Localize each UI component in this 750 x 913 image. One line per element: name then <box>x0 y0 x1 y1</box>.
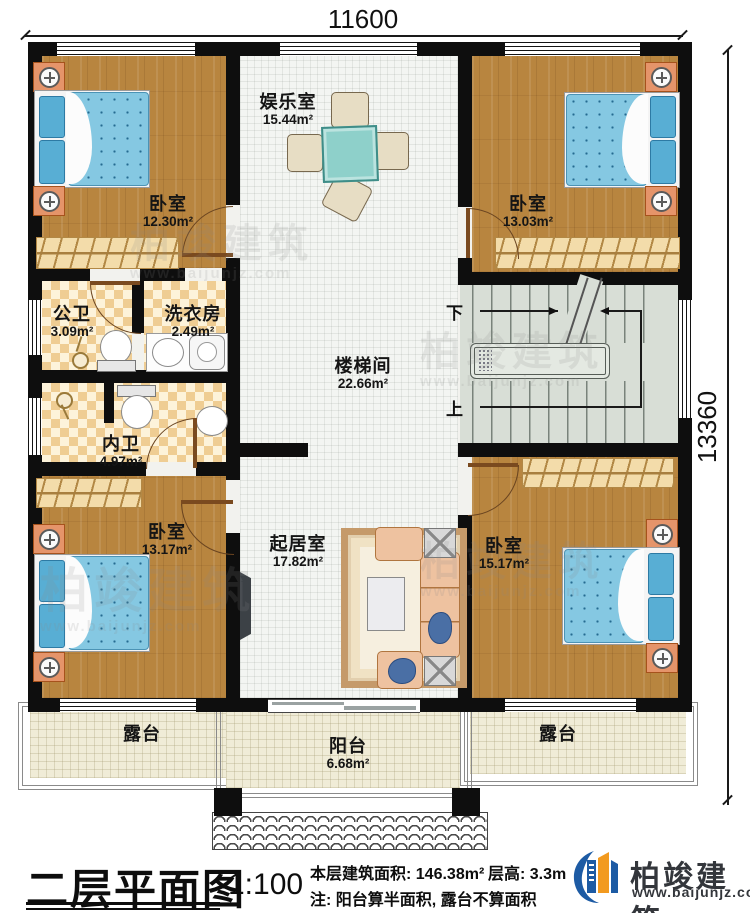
wall-inner <box>458 443 692 457</box>
dimension-right-line <box>727 50 729 805</box>
room-label-bedroom-bl: 卧室 13.17m² <box>130 522 204 557</box>
nightstand <box>646 519 678 549</box>
wall-inner <box>226 42 240 205</box>
wall-inner <box>458 272 692 285</box>
sink-icon <box>152 338 184 367</box>
toilet-icon <box>121 395 153 429</box>
floor-plan-page: 11600 13360 <box>0 0 750 913</box>
room-label-private-bath: 内卫 4.97m² <box>86 434 156 469</box>
balcony-post <box>214 788 242 816</box>
pillow <box>648 553 674 595</box>
title-underline <box>26 908 220 910</box>
nightstand <box>33 524 65 554</box>
room-label-living-room: 起居室 17.82m² <box>258 534 338 569</box>
wardrobe <box>36 478 142 508</box>
title-underline <box>26 902 220 905</box>
wall-inner <box>226 258 240 480</box>
wardrobe <box>495 237 680 269</box>
side-table <box>424 656 456 686</box>
room-label-balcony: 阳台 6.68m² <box>316 736 380 771</box>
room-label-terrace-right: 露台 <box>528 724 588 744</box>
nightstand <box>33 186 65 216</box>
shower-head-icon <box>56 392 73 409</box>
wall-inner <box>458 42 472 207</box>
stair-path-line <box>640 311 642 408</box>
door-leaf-bedroom-bl <box>181 500 233 504</box>
wall-inner <box>104 383 114 423</box>
pillow <box>39 140 65 184</box>
toilet-tank <box>97 360 136 372</box>
washer-drum <box>197 342 217 362</box>
chair <box>331 92 369 128</box>
window-entertainment <box>280 42 417 56</box>
nightstand <box>645 62 677 92</box>
nightstand <box>33 652 65 682</box>
watermark: 柏竣建筑 www.baijunjz.com <box>420 330 604 391</box>
lamp-icon <box>651 67 672 88</box>
wall-inner <box>196 462 240 476</box>
sliding-door-panel <box>344 706 416 710</box>
floor-area-text: 本层建筑面积: 146.38m² <box>310 860 484 884</box>
dimension-top-line <box>25 35 683 37</box>
window-bedroom-br <box>505 698 636 712</box>
room-label-bedroom-tr: 卧室 13.03m² <box>492 194 564 229</box>
company-website: www.baijunjz.com <box>632 884 750 900</box>
floor-height-text: 层高: 3.3m <box>488 860 566 884</box>
nightstand <box>33 62 65 92</box>
lamp-icon <box>651 191 672 212</box>
pillow <box>648 597 674 641</box>
wall-inner <box>240 443 308 457</box>
watermark: 柏竣建筑 www.baijunjz.com <box>40 566 256 635</box>
room-label-bedroom-br: 卧室 15.17m² <box>466 536 542 571</box>
balcony-post <box>452 788 480 816</box>
stair-arrow <box>549 307 558 315</box>
company-name: 柏竣建筑 <box>630 852 750 913</box>
sliding-door-panel <box>272 702 344 706</box>
nightstand <box>645 186 677 216</box>
armchair <box>375 527 423 561</box>
room-label-entertainment: 娱乐室 15.44m² <box>247 92 329 127</box>
cushion <box>428 612 452 644</box>
shower-head-icon <box>72 352 89 369</box>
coffee-table <box>367 577 405 631</box>
washing-machine-icon <box>189 335 225 370</box>
chair <box>287 134 323 172</box>
dimension-right-label: 13360 <box>692 382 722 472</box>
room-label-bedroom-tl: 卧室 12.30m² <box>132 194 204 229</box>
wall-inner <box>28 268 90 281</box>
sink-icon <box>196 406 228 436</box>
balcony-sliding-door <box>268 699 420 713</box>
note-text: 注: 阳台算半面积, 露台不算面积 <box>310 886 537 910</box>
door-leaf-bedroom-br <box>468 463 518 467</box>
room-label-laundry: 洗衣房 2.49m² <box>152 304 234 339</box>
stair-path-line <box>480 406 642 408</box>
lamp-icon <box>39 529 60 550</box>
pillow <box>650 140 676 184</box>
nightstand <box>646 643 678 673</box>
lamp-icon <box>39 67 60 88</box>
window-private-bath <box>28 398 42 455</box>
lamp-icon <box>652 648 673 669</box>
room-label-public-bath: 公卫 3.09m² <box>38 304 106 339</box>
drawing-scale: 1:100 <box>228 868 303 902</box>
door-leaf-private-bath <box>193 418 197 468</box>
lamp-icon <box>39 191 60 212</box>
stair-path-line <box>480 310 558 312</box>
cushion <box>388 658 416 684</box>
door-leaf-bedroom-tr <box>466 208 470 258</box>
lamp-icon <box>39 657 60 678</box>
balcony-roof-tiles <box>212 812 488 850</box>
company-logo-icon <box>568 848 624 906</box>
window-stairwell <box>678 300 692 418</box>
room-label-stair-hall: 楼梯间 22.66m² <box>322 356 404 391</box>
stair-arrow <box>600 307 609 315</box>
stair-up-label: 上 <box>446 395 463 420</box>
stair-down-label: 下 <box>446 299 463 324</box>
window-bedroom-tl <box>57 42 195 56</box>
pillow <box>39 96 65 138</box>
watermark: 柏竣建筑 www.baijunjz.com <box>130 222 314 283</box>
pillow <box>650 96 676 138</box>
dimension-top-label: 11600 <box>318 4 408 35</box>
game-table <box>321 125 379 183</box>
window-bedroom-tr <box>505 42 640 56</box>
wardrobe <box>522 458 674 488</box>
lamp-icon <box>652 524 673 545</box>
window-bedroom-bl <box>60 698 196 712</box>
room-label-terrace-left: 露台 <box>112 724 172 744</box>
